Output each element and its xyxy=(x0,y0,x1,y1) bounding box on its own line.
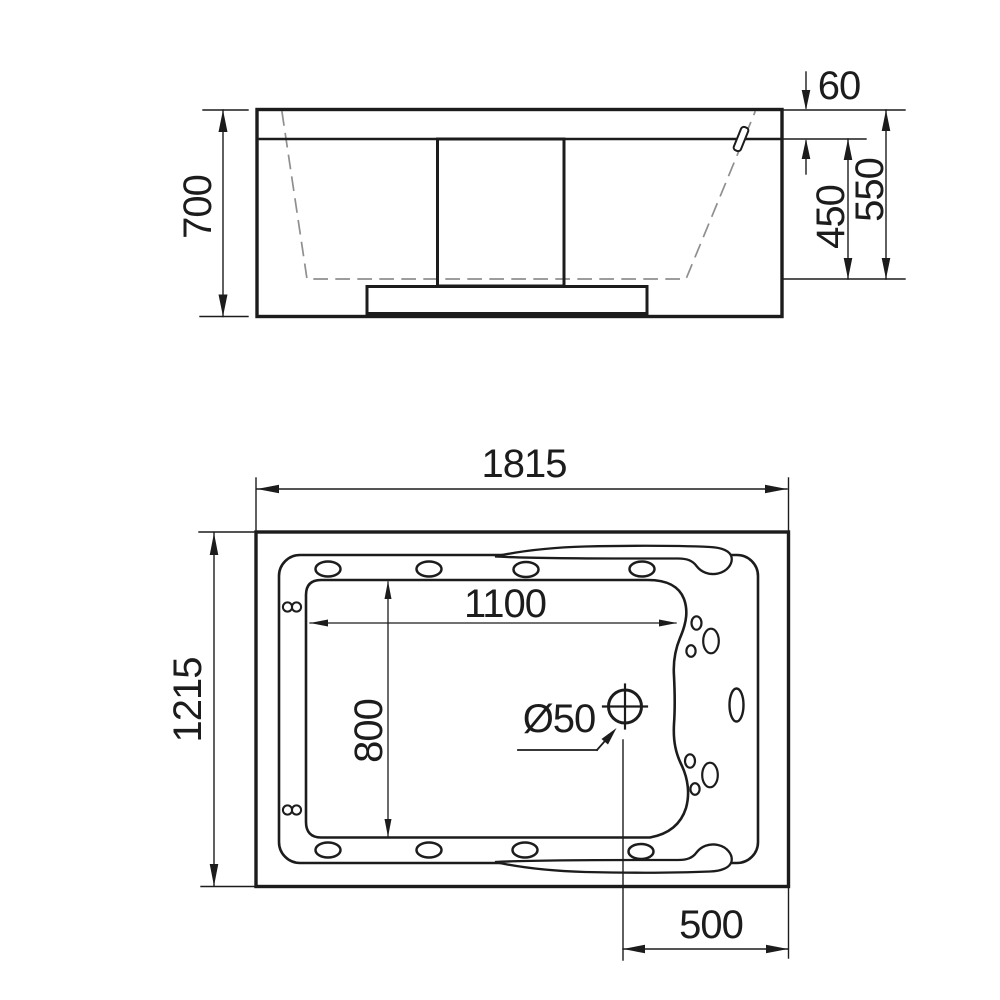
dim-label-550: 550 xyxy=(848,158,892,222)
air-jet-oval xyxy=(513,843,538,858)
drain-symbol xyxy=(603,685,647,729)
arrowhead xyxy=(802,90,811,110)
dim-label-1215: 1215 xyxy=(166,658,210,743)
side-jet-right-wall xyxy=(730,689,744,722)
base-plinth-outline xyxy=(367,287,647,314)
arrowhead xyxy=(385,819,392,837)
drawing-canvas: 700 60 450 550 xyxy=(0,0,1000,1000)
arrowhead xyxy=(882,258,891,279)
arrowhead xyxy=(882,110,891,131)
dim-label-1815: 1815 xyxy=(482,442,567,486)
headrest-bottom xyxy=(495,844,732,872)
dim-label-500: 500 xyxy=(679,903,743,947)
arrowhead xyxy=(257,485,279,494)
dim-label-450: 450 xyxy=(809,185,853,249)
dim-label-drain-diameter: Ø50 xyxy=(523,697,596,741)
dim-overall-length xyxy=(256,478,789,532)
arrowhead xyxy=(623,945,645,954)
tub-profile-dashed-line xyxy=(282,112,755,279)
arrowhead xyxy=(766,945,788,954)
arrowhead xyxy=(659,620,677,627)
arrowhead xyxy=(219,295,228,317)
air-jet-oval xyxy=(316,562,341,577)
air-jet-oval xyxy=(417,562,442,577)
plan-view: 1815 1215 1100 800 Ø50 xyxy=(166,442,789,960)
arrowhead xyxy=(219,110,228,132)
arrowhead xyxy=(210,864,219,886)
dim-label-60: 60 xyxy=(818,64,861,108)
service-panel-outline xyxy=(438,139,565,286)
arrowhead xyxy=(844,258,853,279)
arrowhead xyxy=(310,620,328,627)
hydro-jet-cluster-upper xyxy=(686,616,718,657)
drawing-sheet: 700 60 450 550 xyxy=(0,0,1000,1000)
arrowhead xyxy=(210,533,219,555)
arrowhead xyxy=(385,581,392,599)
air-jet-oval xyxy=(514,562,539,577)
arrowhead xyxy=(844,139,853,160)
front-elevation-view: 700 60 450 550 xyxy=(176,64,905,317)
arrowhead xyxy=(802,139,811,159)
side-jet-pair xyxy=(283,602,301,611)
dim-label-700: 700 xyxy=(176,175,220,239)
air-jet-oval xyxy=(630,562,655,577)
dim-label-1100: 1100 xyxy=(464,582,546,626)
air-jet-oval xyxy=(316,843,341,858)
air-jet-oval xyxy=(629,844,654,859)
side-jet-pair xyxy=(283,805,301,814)
headrest-top xyxy=(495,546,732,574)
air-jet-oval xyxy=(417,843,442,858)
arrowhead xyxy=(765,485,787,494)
dim-label-800: 800 xyxy=(347,699,391,763)
hydro-jet-cluster-lower xyxy=(685,754,718,795)
